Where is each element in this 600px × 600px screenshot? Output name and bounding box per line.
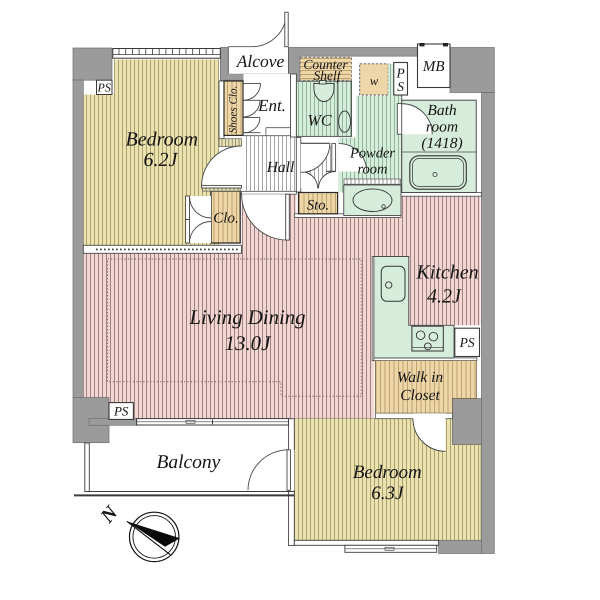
svg-text:room: room — [426, 119, 458, 136]
svg-text:PS: PS — [459, 335, 475, 350]
svg-text:WC: WC — [308, 113, 332, 130]
svg-text:PS: PS — [113, 404, 129, 419]
svg-text:(1418): (1418) — [421, 135, 462, 152]
svg-text:Kitchen: Kitchen — [415, 262, 478, 284]
svg-text:Alcove: Alcove — [236, 51, 285, 71]
svg-text:w: w — [370, 74, 379, 88]
svg-text:Clo.: Clo. — [213, 211, 238, 227]
svg-text:Shelf: Shelf — [314, 68, 343, 83]
svg-text:Walk in: Walk in — [397, 369, 444, 386]
svg-text:Hall: Hall — [266, 159, 295, 176]
svg-text:Shoes Clo.: Shoes Clo. — [228, 86, 240, 134]
svg-text:Ent.: Ent. — [257, 96, 286, 115]
svg-text:Bedroom: Bedroom — [353, 462, 422, 483]
svg-text:Balcony: Balcony — [156, 452, 220, 473]
svg-text:Sto.: Sto. — [307, 198, 329, 214]
svg-text:S: S — [397, 79, 404, 94]
svg-text:Closet: Closet — [400, 387, 440, 404]
svg-text:room: room — [357, 162, 387, 178]
svg-text:6.2J: 6.2J — [144, 149, 179, 171]
svg-text:Living Dining: Living Dining — [188, 306, 305, 329]
svg-text:Bedroom: Bedroom — [126, 129, 199, 151]
svg-text:Bath: Bath — [427, 102, 457, 119]
svg-text:PS: PS — [97, 81, 111, 95]
svg-text:13.0J: 13.0J — [225, 332, 272, 355]
svg-text:4.2J: 4.2J — [427, 286, 462, 308]
svg-text:6.3J: 6.3J — [371, 483, 405, 504]
svg-text:Powder: Powder — [349, 146, 395, 162]
svg-text:MB: MB — [422, 59, 445, 75]
